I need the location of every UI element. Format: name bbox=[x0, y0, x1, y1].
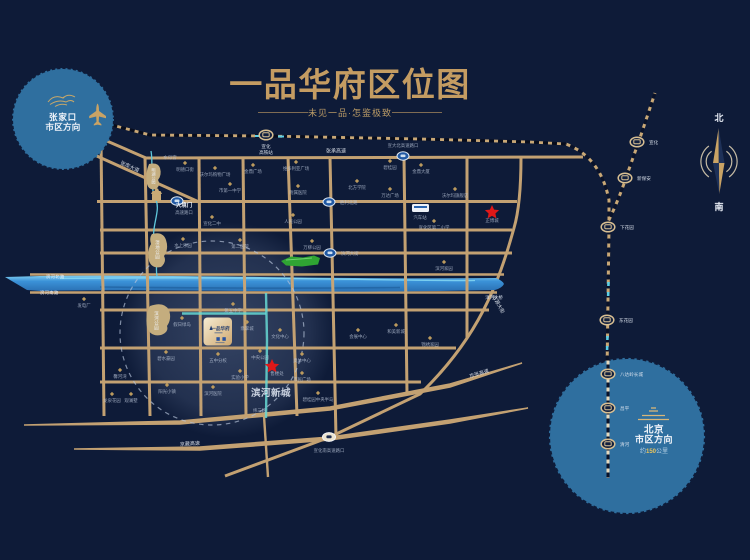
svg-text:中央公园: 中央公园 bbox=[251, 354, 269, 361]
svg-text:金鼎广场: 金鼎广场 bbox=[244, 168, 262, 175]
svg-text:翡翠城: 翡翠城 bbox=[240, 325, 254, 332]
svg-text:宣化南高速路口: 宣化南高速路口 bbox=[314, 447, 345, 454]
svg-text:滨河北路: 滨河北路 bbox=[46, 273, 65, 280]
svg-text:观澜墅: 观澜墅 bbox=[124, 397, 138, 404]
svg-text:市民广场: 市民广场 bbox=[293, 376, 311, 383]
svg-text:湿地公园: 湿地公园 bbox=[155, 239, 161, 261]
svg-text:宣化区第二小学: 宣化区第二小学 bbox=[419, 224, 450, 231]
svg-text:八达岭长城: 八达岭长城 bbox=[620, 371, 643, 378]
svg-text:张承高速: 张承高速 bbox=[326, 148, 346, 155]
svg-text:滨河公园: 滨河公园 bbox=[154, 310, 160, 332]
svg-text:滨河新城: 滨河新城 bbox=[251, 387, 291, 399]
svg-text:第二医院: 第二医院 bbox=[231, 243, 249, 250]
svg-text:水母宫: 水母宫 bbox=[163, 154, 177, 161]
svg-text:纬三路: 纬三路 bbox=[253, 407, 267, 414]
svg-text:明德口街: 明德口街 bbox=[176, 166, 194, 173]
svg-text:发电厂: 发电厂 bbox=[77, 302, 91, 309]
svg-text:第五中学: 第五中学 bbox=[224, 307, 242, 314]
svg-text:高铁站: 高铁站 bbox=[259, 149, 273, 156]
svg-text:市区方向: 市区方向 bbox=[45, 122, 80, 132]
svg-text:锦绣家园: 锦绣家园 bbox=[421, 341, 439, 348]
svg-text:会展中心: 会展中心 bbox=[349, 333, 367, 340]
svg-text:市第一中学: 市第一中学 bbox=[219, 187, 242, 194]
svg-text:新保安: 新保安 bbox=[637, 175, 651, 182]
svg-text:宣化: 宣化 bbox=[261, 143, 271, 150]
svg-text:水上乐园: 水上乐园 bbox=[174, 242, 192, 249]
svg-text:宣化: 宣化 bbox=[649, 139, 659, 146]
svg-text:未见一品·怎鉴极致: 未见一品·怎鉴极致 bbox=[308, 107, 392, 118]
svg-text:万柳公园: 万柳公园 bbox=[303, 244, 321, 251]
svg-text:龙泉花园: 龙泉花园 bbox=[103, 397, 121, 404]
svg-text:五中分校: 五中分校 bbox=[209, 357, 227, 364]
svg-text:沃尔玛旗舰店: 沃尔玛旗舰店 bbox=[442, 192, 469, 199]
svg-text:清河: 清河 bbox=[620, 441, 630, 448]
svg-text:北: 北 bbox=[714, 112, 723, 123]
svg-text:附属医院: 附属医院 bbox=[289, 189, 307, 196]
svg-text:滨河南路: 滨河南路 bbox=[40, 289, 59, 296]
svg-text:一品华府: 一品华府 bbox=[211, 325, 230, 332]
svg-text:张家口: 张家口 bbox=[49, 112, 77, 122]
svg-text:沃尔玛购物广场: 沃尔玛购物广场 bbox=[200, 171, 231, 178]
svg-text:滨河大街: 滨河大街 bbox=[341, 250, 359, 257]
svg-text:碧桂园中央半岛: 碧桂园中央半岛 bbox=[303, 396, 334, 403]
svg-text:和美新城: 和美新城 bbox=[387, 328, 405, 335]
svg-text:维多利亚广场: 维多利亚广场 bbox=[283, 165, 310, 172]
svg-text:大境门: 大境门 bbox=[176, 201, 193, 209]
svg-text:一品华府区位图: 一品华府区位图 bbox=[229, 66, 471, 104]
svg-text:约150公里: 约150公里 bbox=[640, 447, 668, 455]
svg-text:奥体中心: 奥体中心 bbox=[293, 357, 311, 364]
svg-text:东花园: 东花园 bbox=[619, 317, 633, 324]
svg-text:京藏高速: 京藏高速 bbox=[180, 440, 200, 448]
svg-text:售楼处: 售楼处 bbox=[270, 370, 284, 377]
svg-text:碧桂园: 碧桂园 bbox=[383, 164, 397, 171]
svg-text:宣化二中: 宣化二中 bbox=[203, 220, 221, 227]
svg-text:万达广场: 万达广场 bbox=[381, 192, 399, 199]
svg-text:正博城: 正博城 bbox=[485, 217, 499, 224]
svg-text:文化中心: 文化中心 bbox=[271, 333, 289, 340]
svg-text:市区方向: 市区方向 bbox=[635, 434, 673, 445]
svg-text:滨河家园: 滨河家园 bbox=[435, 265, 453, 272]
svg-text:高速路口: 高速路口 bbox=[175, 209, 193, 216]
svg-text:汽车站: 汽车站 bbox=[413, 214, 427, 221]
svg-text:胜利北路: 胜利北路 bbox=[340, 199, 358, 206]
svg-text:馨河湾: 馨河湾 bbox=[113, 373, 127, 380]
svg-text:碧水豪园: 碧水豪园 bbox=[157, 355, 175, 362]
svg-text:金鼎大厦: 金鼎大厦 bbox=[412, 168, 430, 175]
svg-text:南: 南 bbox=[714, 201, 723, 212]
svg-text:假日绿岛: 假日绿岛 bbox=[173, 321, 191, 328]
svg-text:实验小学: 实验小学 bbox=[231, 374, 249, 381]
svg-text:下花园: 下花园 bbox=[620, 224, 634, 231]
svg-text:北方学院: 北方学院 bbox=[348, 184, 366, 191]
svg-text:阳光小镇: 阳光小镇 bbox=[158, 388, 176, 395]
svg-text:滨河医院: 滨河医院 bbox=[204, 390, 222, 397]
svg-text:明湖公园: 明湖公园 bbox=[152, 168, 157, 185]
svg-text:宣大北高速路口: 宣大北高速路口 bbox=[388, 142, 419, 149]
